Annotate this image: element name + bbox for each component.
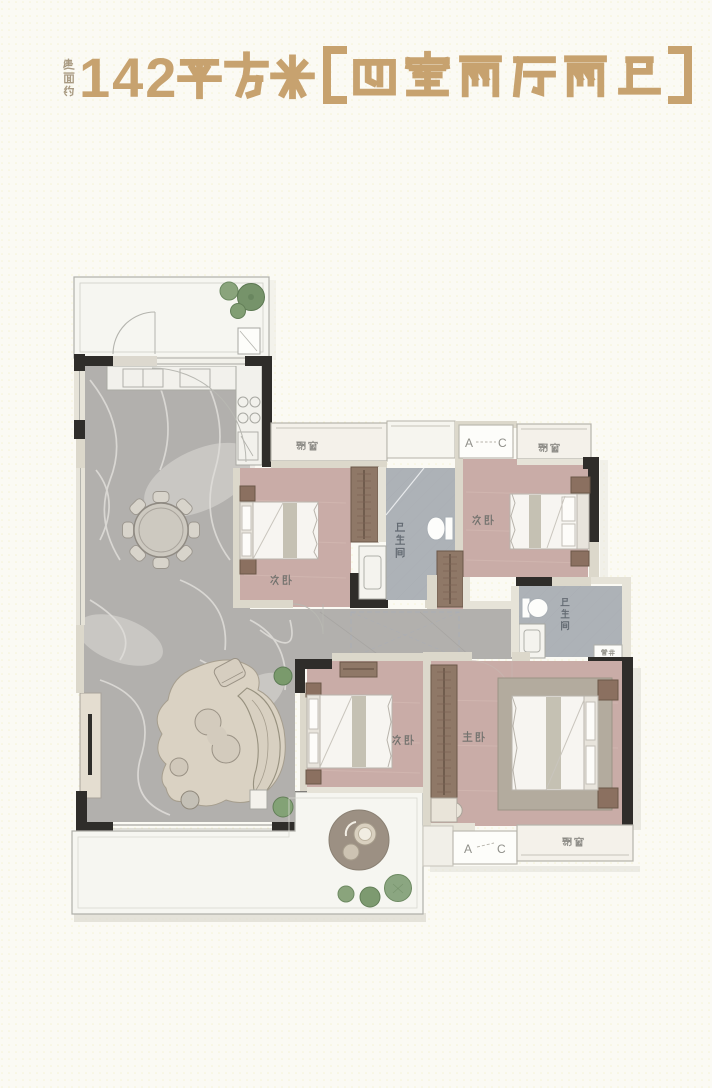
svg-text:C: C	[497, 842, 506, 856]
svg-text:C: C	[498, 436, 507, 450]
svg-text:142: 142	[79, 46, 178, 109]
svg-text:A: A	[464, 842, 472, 856]
svg-text:A: A	[465, 436, 473, 450]
